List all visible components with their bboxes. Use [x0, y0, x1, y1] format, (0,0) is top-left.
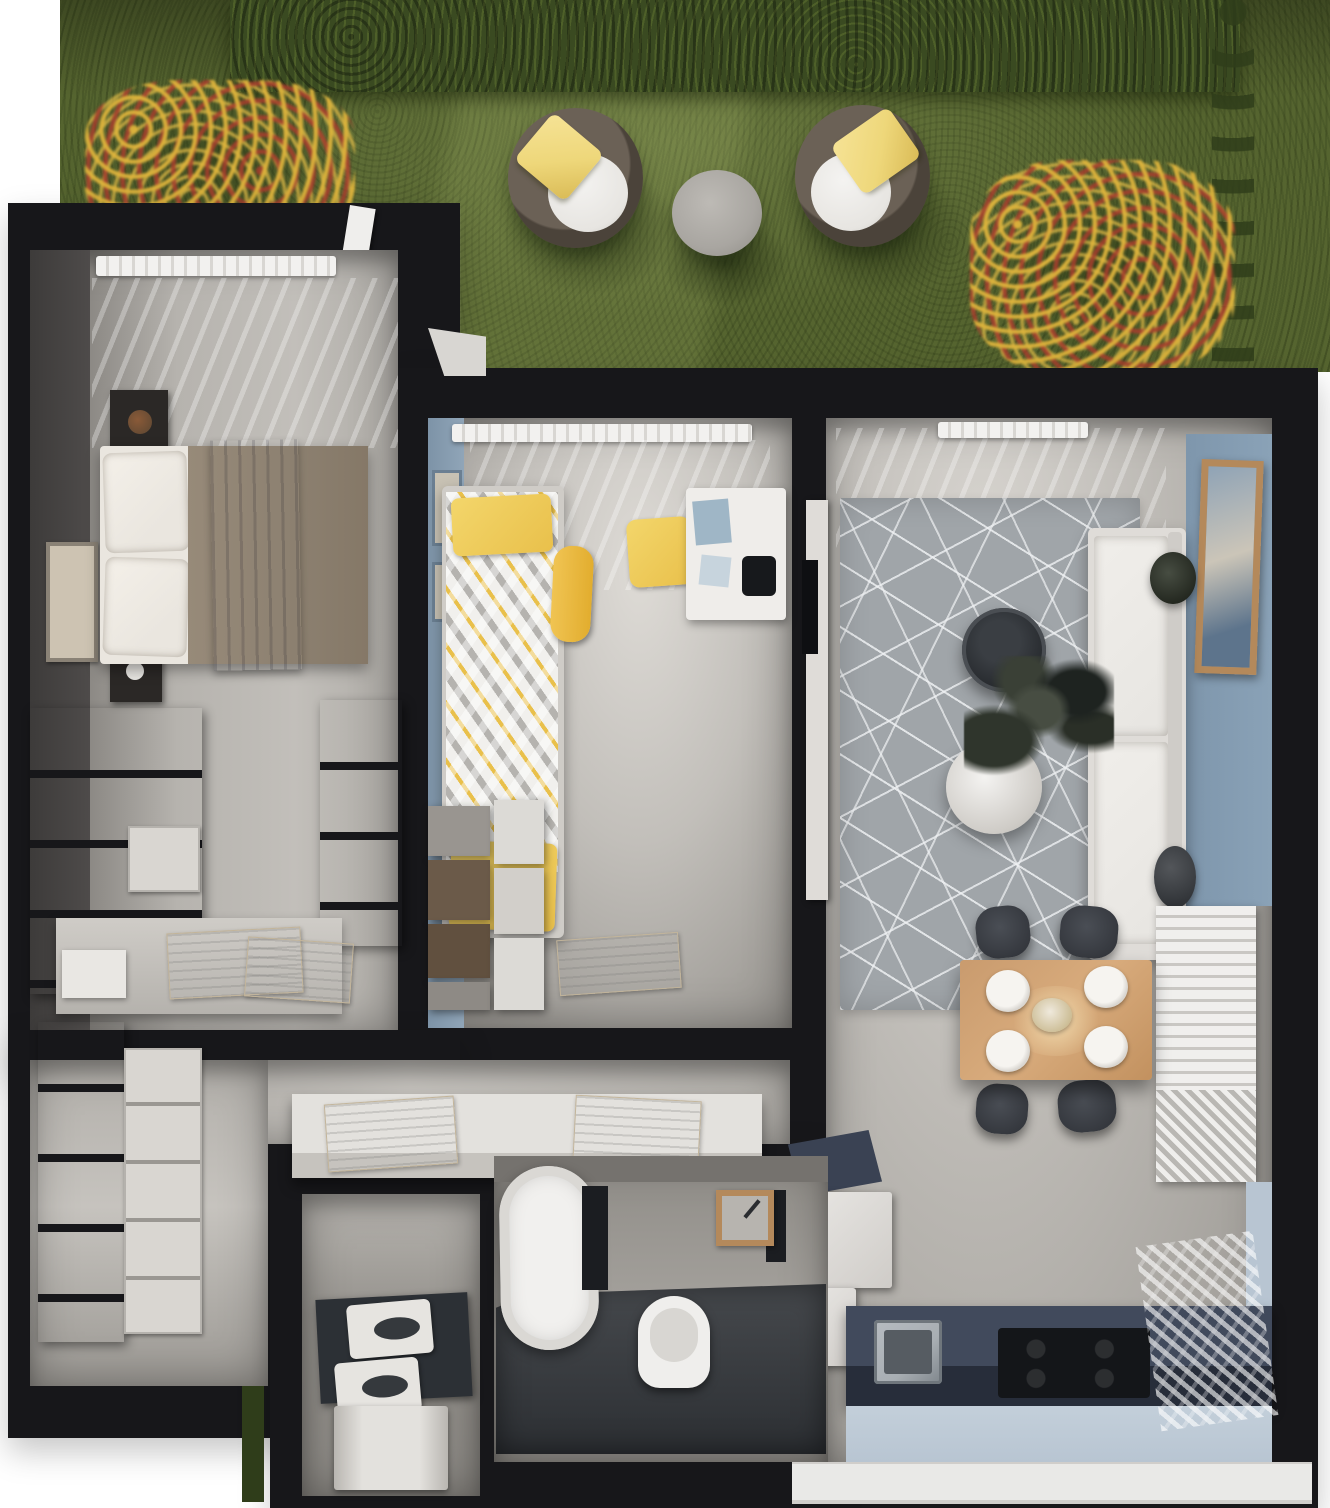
wardrobe-drawers: [124, 1048, 202, 1334]
toilet: [638, 1296, 710, 1388]
bedroom-radiator: [96, 256, 336, 276]
wardrobe-body: [38, 1022, 124, 1342]
hallway-wardrobe: [38, 1022, 202, 1342]
storage-box-white: [494, 800, 544, 864]
table-centerpiece: [1032, 998, 1072, 1032]
dresser-drawer-open: [128, 826, 200, 892]
lounge-chair-right: [795, 105, 930, 247]
storage-box: [428, 806, 490, 856]
floor-plan-render: [0, 0, 1330, 1508]
kids-floor-rug: [556, 932, 682, 996]
grass-sliver: [242, 1384, 264, 1502]
kids-chair: [626, 516, 695, 588]
flower-bed-right: [970, 160, 1235, 375]
kids-desk: [686, 488, 786, 620]
garden-side-table: [672, 170, 762, 256]
cooktop: [998, 1328, 1150, 1398]
dining-chair: [1058, 904, 1120, 961]
kitchen-sink: [874, 1320, 942, 1384]
bedroom-dresser-right: [320, 700, 402, 946]
bathroom-sink: [716, 1190, 774, 1246]
washer: [346, 1298, 434, 1359]
skateboard: [550, 545, 595, 643]
window-wall: [792, 1462, 1312, 1504]
storage-box: [428, 982, 490, 1010]
shower-partition: [582, 1186, 608, 1290]
dinner-plate: [1084, 966, 1128, 1008]
lounge-chair-left: [508, 108, 643, 248]
nightstand-plant: [128, 410, 152, 434]
slatted-shelf: [1156, 906, 1256, 1182]
kids-dresser: [428, 806, 544, 1010]
dining-table: [960, 960, 1152, 1080]
nightstand-lamp: [126, 662, 144, 680]
storage-box: [428, 860, 490, 920]
desk-box: [62, 950, 126, 998]
dining-chair: [974, 1082, 1029, 1136]
open-magazine: [244, 936, 354, 1003]
plant-leaves: [964, 656, 1114, 776]
double-bed: [100, 446, 368, 664]
desk-lamp: [742, 556, 776, 596]
bed-throw-blanket: [210, 439, 302, 671]
dinner-plate: [986, 970, 1030, 1012]
storage-box-white: [494, 938, 544, 1010]
bedroom-desk: [56, 918, 342, 1014]
dining-chair: [1056, 1078, 1118, 1135]
tv: [802, 560, 818, 654]
dinner-plate: [1084, 1026, 1128, 1068]
sofa-plant: [1150, 552, 1196, 604]
living-radiator: [938, 422, 1088, 438]
open-book: [324, 1096, 458, 1173]
desk-paper: [699, 555, 732, 588]
dinner-plate: [986, 1030, 1030, 1072]
storage-box: [428, 924, 490, 978]
hedge: [230, 0, 1240, 92]
desk-paper: [692, 499, 732, 546]
utility-appliance: [334, 1406, 448, 1490]
bed-pillow: [102, 451, 189, 554]
storage-box-white: [494, 868, 544, 934]
bedroom-wall-art: [46, 542, 98, 662]
shelf-basket: [1156, 1090, 1256, 1182]
framed-art: [1194, 459, 1263, 675]
kids-pillow: [451, 493, 554, 556]
faucet: [743, 1199, 760, 1218]
sofa-vase: [1154, 846, 1196, 908]
bed-pillow: [102, 557, 189, 658]
